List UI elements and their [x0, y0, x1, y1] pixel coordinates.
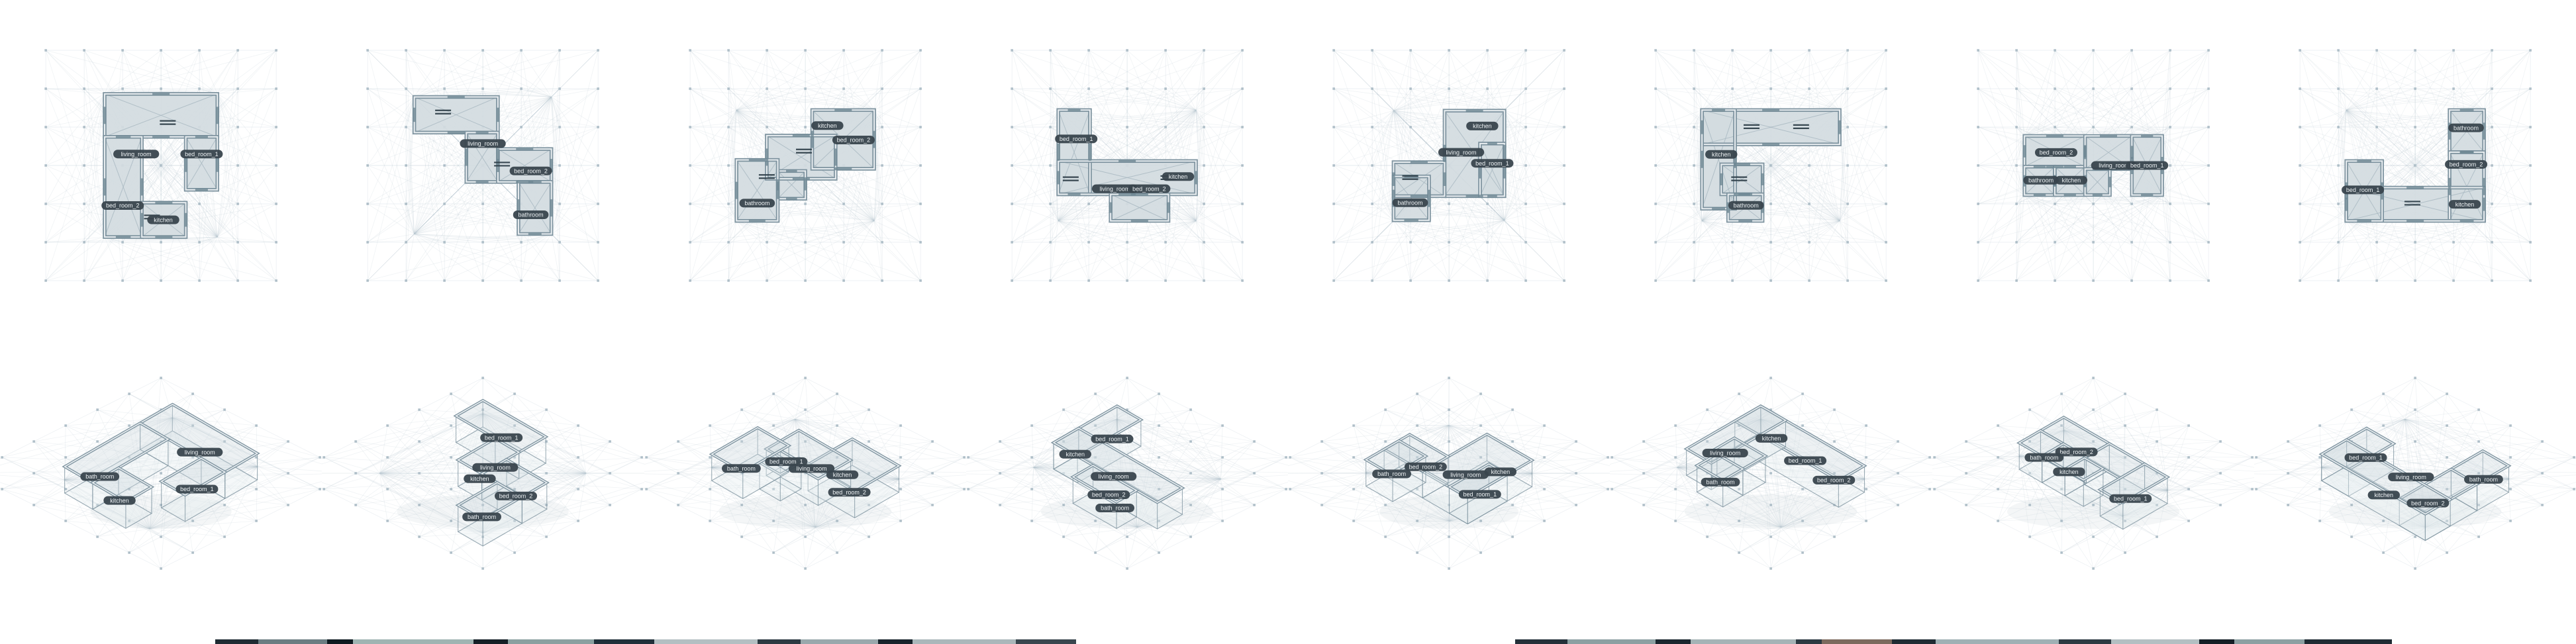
plan-view: living_roombed_room_2bathroom [322, 0, 644, 331]
svg-text:bath_room: bath_room [468, 514, 496, 520]
svg-text:bed_room_1: bed_room_1 [180, 486, 214, 492]
svg-text:kitchen: kitchen [2061, 177, 2081, 184]
svg-text:kitchen: kitchen [2455, 201, 2474, 208]
strip-segment [594, 639, 654, 644]
iso-panel-6: kitchenbed_room_1bed_room_2living_roomba… [1610, 331, 1932, 639]
svg-text:bed_room_2: bed_room_2 [836, 137, 870, 144]
svg-text:bed_room_2: bed_room_2 [2450, 161, 2483, 168]
svg-text:bath_room: bath_room [726, 465, 755, 472]
svg-text:kitchen: kitchen [470, 476, 489, 483]
svg-text:bath_room: bath_room [1377, 471, 1406, 477]
strip-segment [473, 639, 508, 644]
strip-segment [2234, 639, 2304, 644]
strip-segment [1016, 639, 1076, 644]
strip-segment [2059, 639, 2111, 644]
strip-segment [327, 639, 353, 644]
svg-text:bath_room: bath_room [85, 473, 114, 480]
svg-text:living_room: living_room [2099, 162, 2129, 169]
plan-panel-6: kitchenbathroom [1610, 0, 1932, 331]
iso-panel-8: bath_roombed_room_1living_roombed_room_2… [2254, 331, 2576, 639]
iso-panel-7: bed_room_2bath_roomkitchenbed_room_1 [1932, 331, 2254, 639]
strip-segment [1515, 639, 1567, 644]
plan-view: bathroombed_room_2bed_room_1kitchen [2254, 0, 2576, 331]
plan-panel-5: kitchenliving_roombed_room_1bathroom [1288, 0, 1610, 331]
plan-panel-2: living_roombed_room_2bathroom [322, 0, 644, 331]
svg-text:bathroom: bathroom [2028, 177, 2054, 184]
plan-panel-4: bed_room_1kitchenliving_roombed_room_2 [966, 0, 1288, 331]
svg-text:bed_room_2: bed_room_2 [1409, 464, 1443, 471]
svg-text:bed_room_1: bed_room_1 [2346, 187, 2380, 193]
svg-text:kitchen: kitchen [1712, 151, 1731, 158]
strip-segment [913, 639, 1016, 644]
svg-text:bed_room_1: bed_room_1 [769, 459, 803, 465]
svg-text:living_room: living_room [1446, 149, 1477, 156]
svg-text:bed_room_2: bed_room_2 [2039, 150, 2073, 156]
svg-text:living_room: living_room [1098, 473, 1128, 480]
svg-text:bed_room_2: bed_room_2 [832, 489, 866, 496]
cropped-next-row-strip-right [1515, 639, 2392, 644]
strip-segment [1936, 639, 2058, 644]
iso-view: bed_room_1kitchenliving_roombed_room_2ba… [966, 331, 1288, 639]
svg-text:kitchen: kitchen [832, 471, 852, 478]
svg-text:kitchen: kitchen [1491, 469, 1511, 475]
plan-panel-8: bathroombed_room_2bed_room_1kitchen [2254, 0, 2576, 331]
svg-text:bed_room_2: bed_room_2 [106, 203, 140, 209]
strip-segment [1656, 639, 1691, 644]
svg-text:bed_room_1: bed_room_1 [1060, 136, 1093, 142]
floorplan-top-view-row: living_roombed_room_1bed_room_2kitchen l… [0, 0, 2576, 331]
strip-segment [878, 639, 913, 644]
svg-text:bathroom: bathroom [1398, 200, 1423, 207]
strip-segment [1822, 639, 1892, 644]
iso-panel-5: bath_roombed_room_2living_roomkitchenbed… [1288, 331, 1610, 639]
svg-text:bathroom: bathroom [519, 212, 544, 218]
svg-text:bath_room: bath_room [1101, 505, 1129, 512]
strip-segment [508, 639, 594, 644]
svg-text:living_room: living_room [1450, 471, 1481, 478]
svg-text:living_room: living_room [468, 140, 498, 147]
svg-text:kitchen: kitchen [818, 122, 837, 129]
strip-segment [801, 639, 878, 644]
strip-segment [1567, 639, 1655, 644]
iso-view: bed_room_1living_roomkitchenbed_room_2ba… [322, 331, 644, 639]
iso-view: kitchenbed_room_1bed_room_2living_roomba… [1610, 331, 1932, 639]
svg-text:bathroom: bathroom [1734, 202, 1759, 208]
strip-segment [654, 639, 758, 644]
iso-panel-1: living_roombed_room_1bath_roomkitchen [0, 331, 322, 639]
iso-view: living_roombed_room_1bath_roomkitchen [0, 331, 322, 639]
figure-sheet: { "figure": { "description_labels_presen… [0, 0, 2576, 644]
svg-text:bed_room_1: bed_room_1 [2130, 162, 2163, 169]
iso-view: bath_roombed_room_1living_roombed_room_2… [2254, 331, 2576, 639]
iso-view: bath_roombed_room_1living_roomkitchenbed… [644, 331, 966, 639]
svg-text:kitchen: kitchen [1473, 123, 1492, 130]
plan-view: bed_room_1kitchenliving_roombed_room_2 [966, 0, 1288, 331]
strip-segment [1892, 639, 1936, 644]
svg-text:kitchen: kitchen [154, 216, 173, 223]
svg-text:bed_room_2: bed_room_2 [1132, 185, 1166, 192]
plan-panel-3: kitchenbed_room_2bathroom [644, 0, 966, 331]
svg-text:bed_room_1: bed_room_1 [485, 434, 519, 441]
floorplan-isometric-view-row: living_roombed_room_1bath_roomkitchen be… [0, 331, 2576, 639]
svg-text:bed_room_1: bed_room_1 [1463, 491, 1497, 498]
plan-view: kitchenbathroom [1610, 0, 1932, 331]
plan-view: kitchenliving_roombed_room_1bathroom [1288, 0, 1610, 331]
iso-panel-4: bed_room_1kitchenliving_roombed_room_2ba… [966, 331, 1288, 639]
iso-panel-3: bath_roombed_room_1living_roomkitchenbed… [644, 331, 966, 639]
strip-segment [215, 639, 258, 644]
svg-text:bed_room_2: bed_room_2 [1092, 492, 1126, 498]
strip-segment [353, 639, 473, 644]
svg-text:living_room: living_room [796, 465, 826, 472]
svg-text:bathroom: bathroom [744, 200, 769, 207]
svg-text:living_room: living_room [1099, 185, 1130, 192]
strip-segment [2111, 639, 2199, 644]
svg-text:bathroom: bathroom [2453, 124, 2479, 131]
cropped-next-row-strip-left [215, 639, 1076, 644]
strip-segment [2199, 639, 2234, 644]
iso-panel-2: bed_room_1living_roomkitchenbed_room_2ba… [322, 331, 644, 639]
strip-segment [1691, 639, 1796, 644]
svg-text:bed_room_2: bed_room_2 [515, 167, 548, 174]
svg-text:bed_room_1: bed_room_1 [1095, 436, 1129, 442]
plan-panel-7: bed_room_2bathroomkitchenliving_roombed_… [1932, 0, 2254, 331]
strip-segment [1796, 639, 1822, 644]
svg-text:living_room: living_room [185, 449, 215, 455]
svg-text:kitchen: kitchen [1065, 451, 1085, 458]
svg-text:bed_room_1: bed_room_1 [185, 151, 219, 158]
strip-segment [258, 639, 327, 644]
plan-view: living_roombed_room_1bed_room_2kitchen [0, 0, 322, 331]
strip-segment [2304, 639, 2392, 644]
plan-view: kitchenbed_room_2bathroom [644, 0, 966, 331]
iso-view: bath_roombed_room_2living_roomkitchenbed… [1288, 331, 1610, 639]
svg-text:bed_room_1: bed_room_1 [1475, 160, 1509, 167]
strip-segment [758, 639, 801, 644]
iso-view: bed_room_2bath_roomkitchenbed_room_1 [1932, 331, 2254, 639]
svg-text:living_room: living_room [121, 151, 152, 158]
svg-text:kitchen: kitchen [1169, 173, 1188, 180]
plan-view: bed_room_2bathroomkitchenliving_roombed_… [1932, 0, 2254, 331]
svg-text:bed_room_2: bed_room_2 [499, 493, 533, 500]
svg-text:living_room: living_room [480, 464, 511, 471]
svg-text:kitchen: kitchen [110, 497, 129, 504]
plan-panel-1: living_roombed_room_1bed_room_2kitchen [0, 0, 322, 331]
